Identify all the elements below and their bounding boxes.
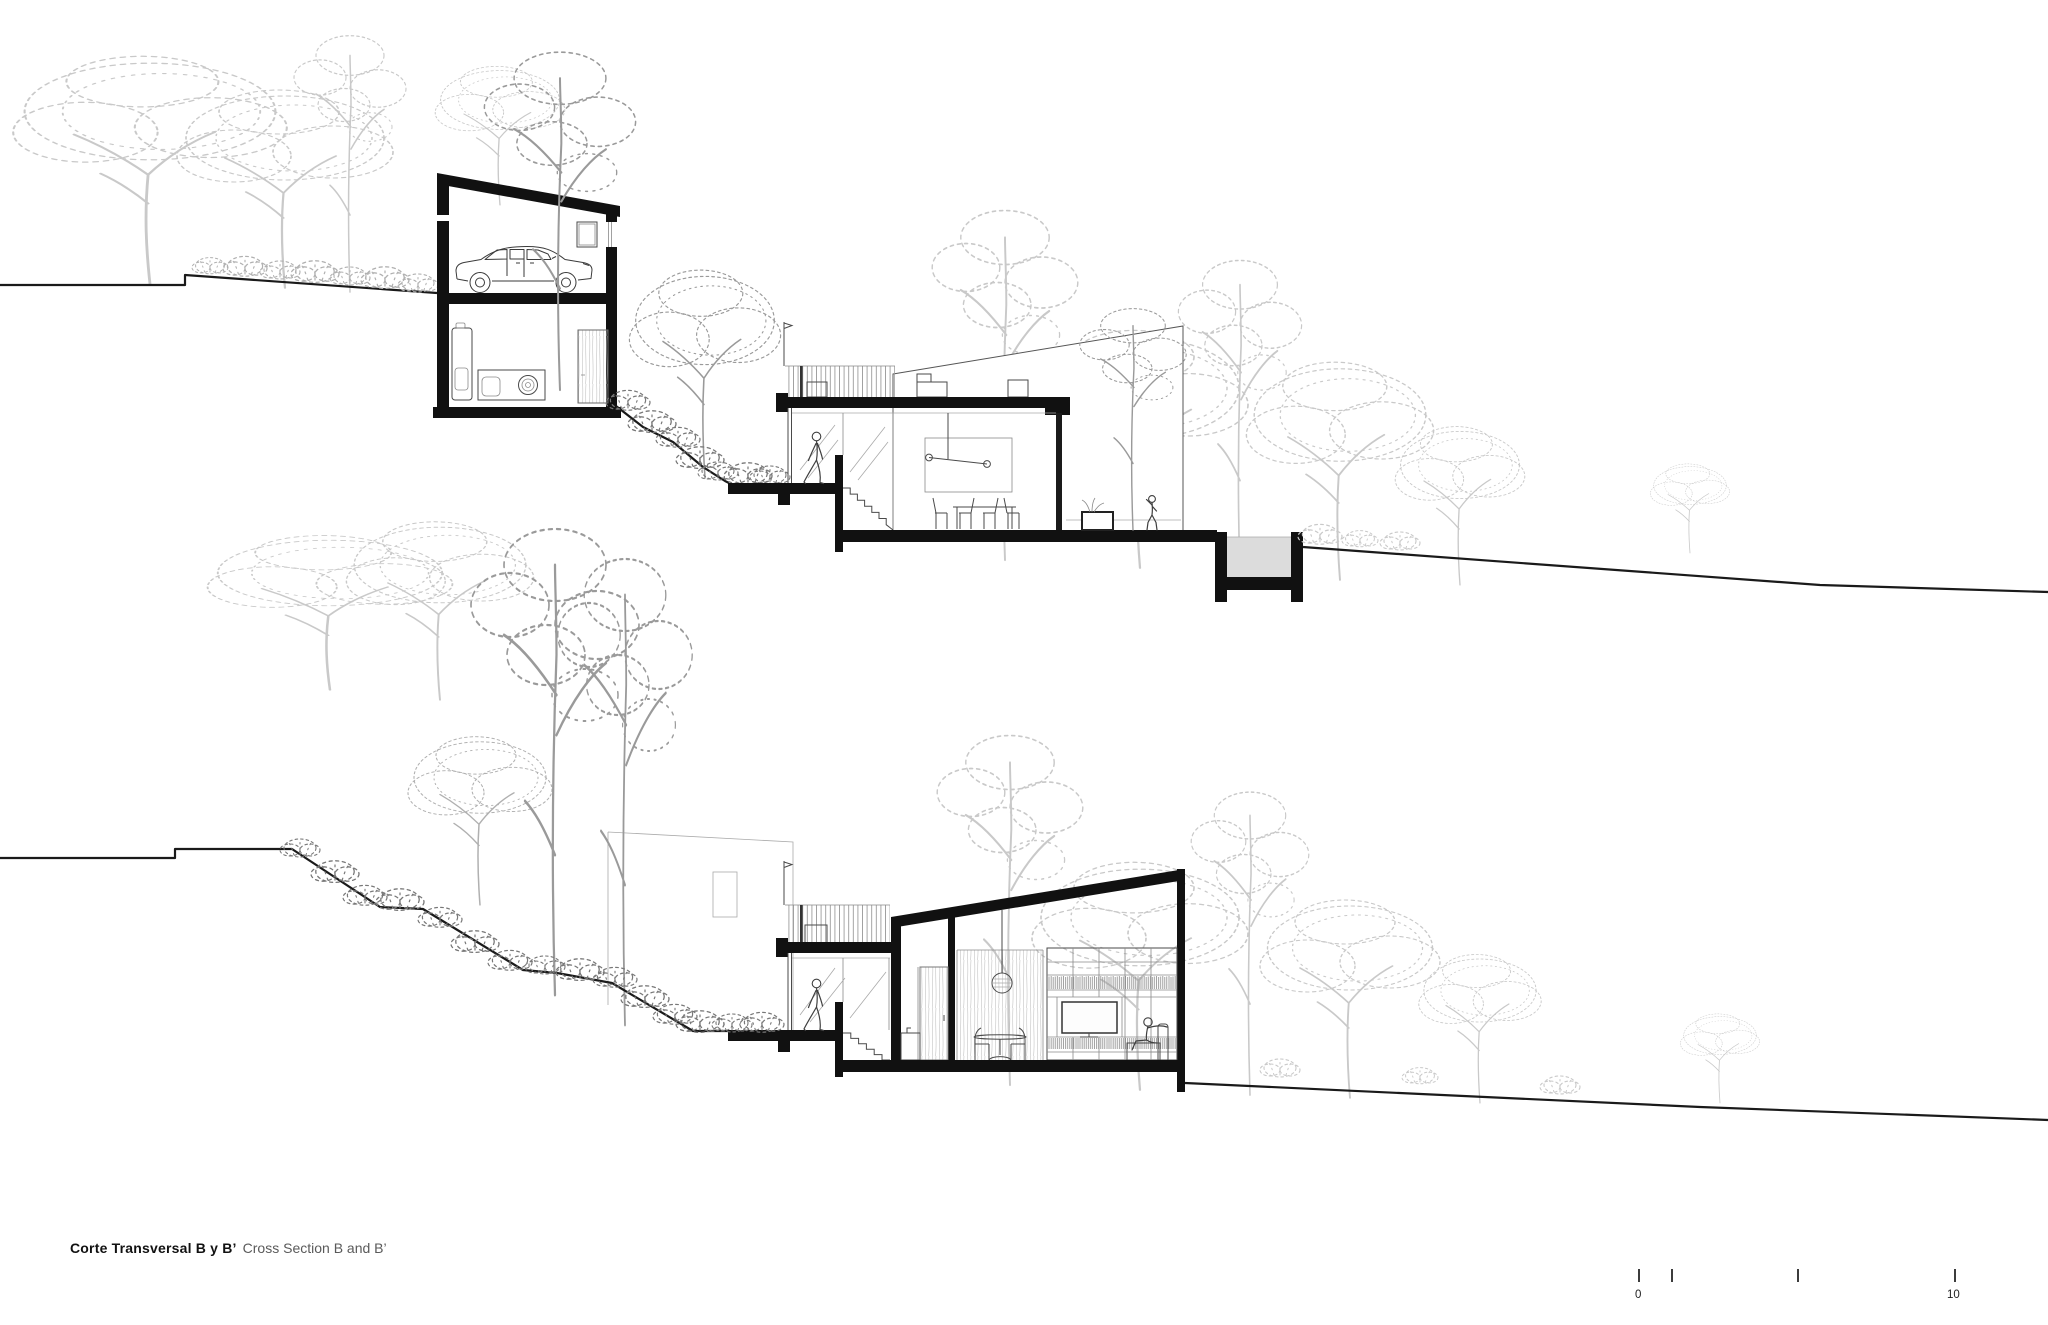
basement-door	[578, 330, 608, 403]
upper-section	[0, 36, 2048, 602]
lower-mid-mullion	[948, 909, 955, 1060]
lower-floor-slab	[835, 1060, 1185, 1072]
upper-terrain-right	[1303, 547, 2048, 592]
water-heater	[452, 323, 472, 400]
lower-left-mullion	[891, 920, 901, 1060]
light-pole-lower	[784, 861, 792, 905]
garage-right-wall-upper	[606, 209, 617, 222]
lower-bay-roof-slab	[778, 942, 892, 953]
upper-walkway-slab	[728, 483, 838, 494]
light-pole	[784, 322, 792, 366]
scale-label-end: 10	[1947, 1289, 1960, 1301]
upper-right-shrubs	[1298, 524, 1420, 550]
title-block: Corte Transversal B y B’Cross Section B …	[70, 1240, 387, 1256]
upper-stair-wall	[835, 455, 843, 552]
roof-terrace-railing-lower	[784, 861, 890, 943]
title-spanish: Corte Transversal B y B’	[70, 1240, 237, 1256]
interior-stair	[843, 488, 893, 530]
basement-equipment	[452, 323, 608, 403]
roof-terrace-railing	[784, 322, 895, 397]
upper-terrain-left	[0, 275, 437, 293]
interior-door	[918, 967, 948, 1060]
garage-window	[577, 222, 597, 247]
scale-tick-10	[1954, 1269, 1956, 1282]
patio-column	[1056, 413, 1062, 530]
background-volume	[608, 832, 793, 1031]
lower-terrain-right	[1185, 1083, 2048, 1120]
scale-tick-1	[1671, 1269, 1673, 1282]
hvac-unit	[478, 370, 545, 400]
patio-wall	[893, 326, 1183, 532]
upper-floor-slab	[843, 530, 1217, 542]
interior-stair-lower	[843, 1033, 890, 1060]
lower-sloped-roof	[891, 869, 1185, 928]
car-illustration	[456, 247, 592, 293]
drawing-sheet: Corte Transversal B y B’Cross Section B …	[0, 0, 2048, 1325]
section-drawing	[0, 0, 2048, 1325]
lower-terrain-left	[0, 849, 729, 1031]
lower-walkway-slab	[728, 1030, 835, 1041]
upper-background-trees	[13, 36, 1729, 585]
title-english: Cross Section B and B’	[243, 1240, 387, 1256]
corridor-counter	[901, 1028, 920, 1060]
upper-roof-parapet	[1045, 397, 1070, 415]
garage-floor-slab	[437, 293, 617, 304]
lower-right-wall	[1177, 869, 1185, 1092]
lower-main-house	[728, 861, 1185, 1092]
scale-tick-5	[1797, 1269, 1799, 1282]
tv-screen	[1062, 1002, 1117, 1037]
scale-bar: 0 10	[1630, 1269, 1970, 1311]
scale-label-start: 0	[1635, 1289, 1641, 1301]
upper-left-shrubs	[192, 256, 438, 292]
upper-main-house	[728, 309, 1217, 552]
upper-terrain-slope	[616, 406, 729, 483]
scale-tick-0	[1638, 1269, 1640, 1282]
lower-section	[0, 522, 2048, 1120]
person-walking-upper	[804, 432, 824, 483]
upper-roof-slab	[778, 397, 1057, 408]
garage-section	[433, 173, 621, 418]
pool-pit	[1215, 532, 1303, 602]
garage-bottom-slab	[433, 407, 621, 418]
garage-roof	[437, 173, 620, 217]
upper-slope-shrubs	[606, 390, 790, 484]
